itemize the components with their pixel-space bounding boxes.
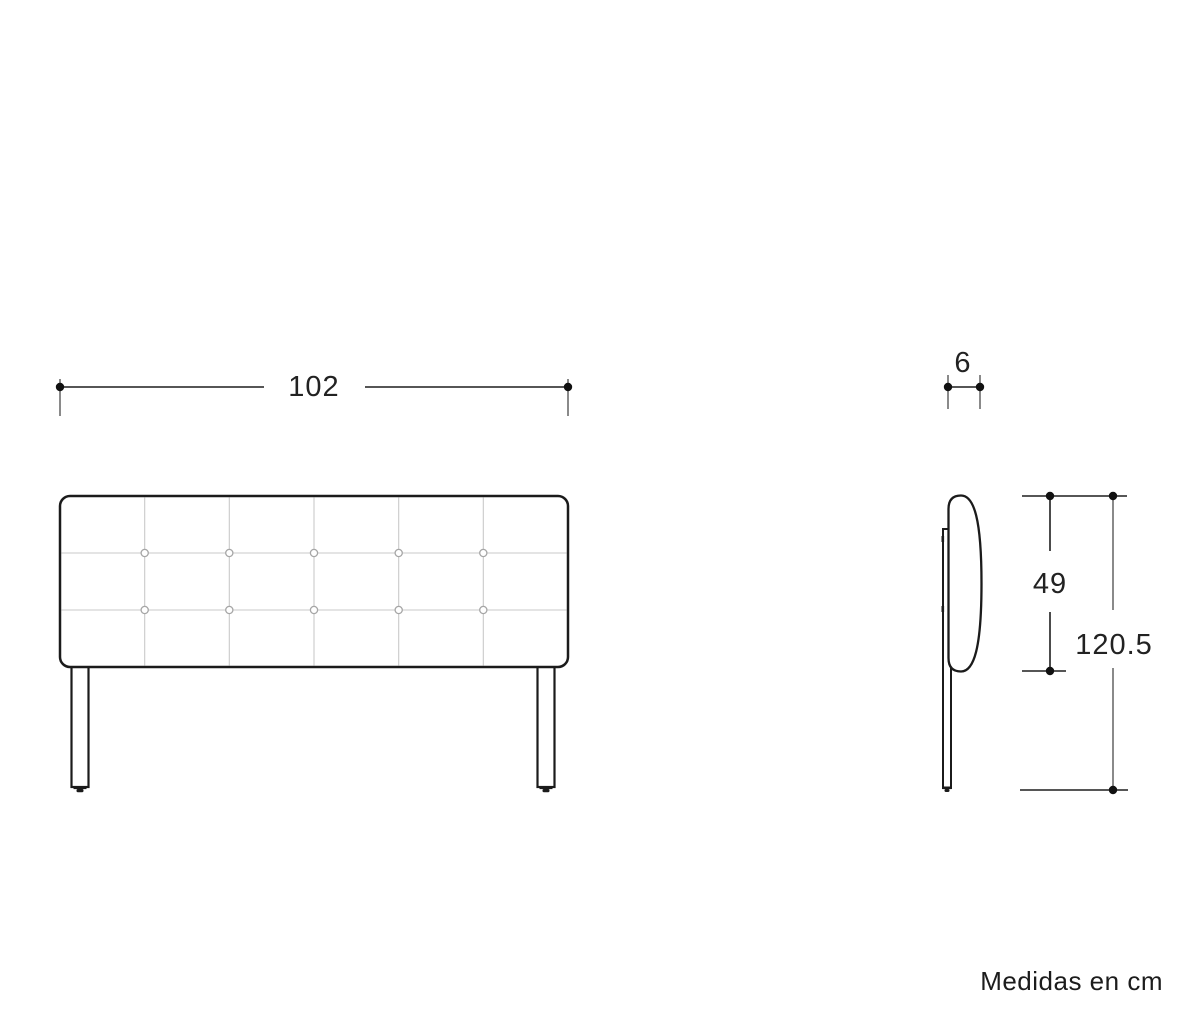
tufting-button bbox=[141, 549, 148, 556]
dimension-endpoint-dot bbox=[564, 383, 572, 391]
panel-height-dimension: 49 bbox=[1033, 492, 1067, 675]
front-left-leg-post bbox=[72, 664, 89, 787]
depth-dimension: 6 bbox=[944, 347, 984, 409]
front-left-foot-glide bbox=[77, 789, 84, 792]
dimension-endpoint-dot bbox=[1109, 492, 1117, 500]
tufting-button bbox=[480, 549, 487, 556]
dimension-endpoint-dot bbox=[944, 383, 952, 391]
side-leg-screw-top bbox=[942, 536, 945, 542]
side-cushion-profile bbox=[949, 496, 982, 672]
tufting-button bbox=[141, 606, 148, 613]
dimension-endpoint-dot bbox=[1109, 786, 1117, 794]
front-right-foot-plate bbox=[540, 787, 553, 790]
front-left-foot-plate bbox=[74, 787, 87, 790]
tufting-button bbox=[395, 549, 402, 556]
front-view: 102 bbox=[56, 371, 572, 792]
side-foot-plate bbox=[943, 787, 952, 790]
side-view: 6 49 120.5 bbox=[942, 347, 1153, 794]
side-leg-screw-bottom bbox=[942, 606, 945, 612]
panel-height-value: 49 bbox=[1033, 568, 1067, 600]
units-label: Medidas en cm bbox=[980, 966, 1163, 996]
dimension-endpoint-dot bbox=[1046, 667, 1054, 675]
front-right-foot-glide bbox=[543, 789, 550, 792]
tufting-button bbox=[395, 606, 402, 613]
front-right-leg-post bbox=[538, 664, 555, 787]
tufting-button bbox=[226, 549, 233, 556]
front-left-leg bbox=[72, 664, 89, 792]
total-height-dimension: 120.5 bbox=[1075, 492, 1153, 794]
width-dimension: 102 bbox=[56, 371, 572, 416]
dimension-endpoint-dot bbox=[1046, 492, 1054, 500]
side-foot-glide bbox=[945, 789, 950, 792]
diagram-canvas: 102 6 bbox=[0, 0, 1200, 1028]
depth-value: 6 bbox=[954, 347, 971, 379]
tufting-button bbox=[310, 606, 317, 613]
tufting-button bbox=[226, 606, 233, 613]
dimension-endpoint-dot bbox=[976, 383, 984, 391]
tufting-button bbox=[310, 549, 317, 556]
total-height-value: 120.5 bbox=[1075, 629, 1153, 661]
dimension-endpoint-dot bbox=[56, 383, 64, 391]
width-value: 102 bbox=[288, 371, 339, 403]
front-right-leg bbox=[538, 664, 555, 792]
tufting-button bbox=[480, 606, 487, 613]
headboard-diagram: 102 6 bbox=[0, 0, 1200, 1028]
